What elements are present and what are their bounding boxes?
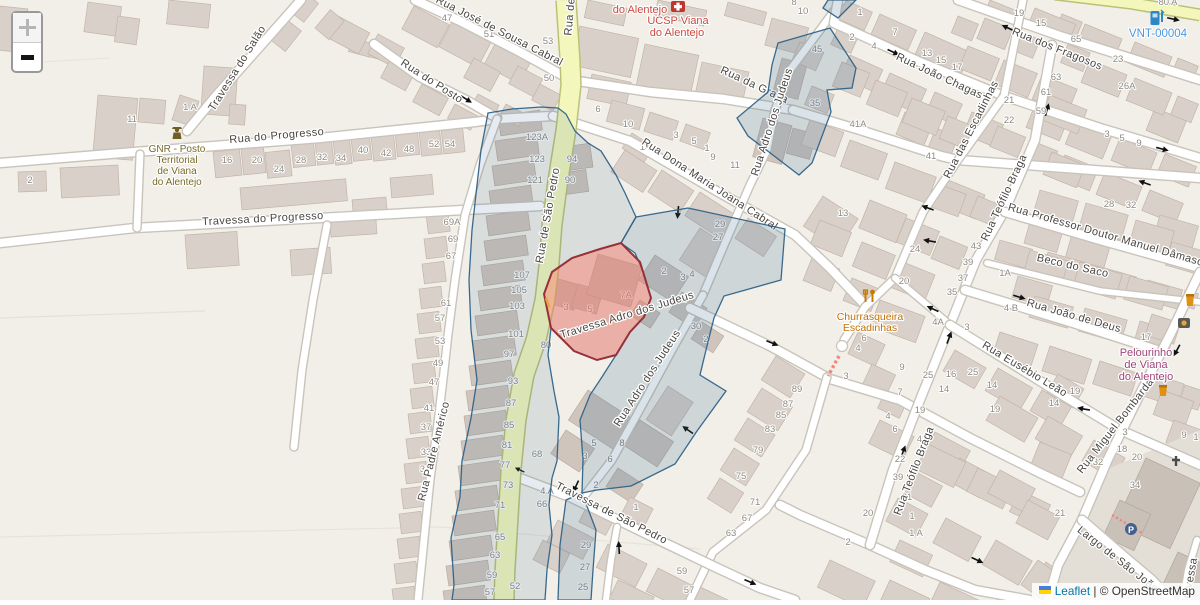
- svg-text:80 A: 80 A: [1158, 0, 1178, 8]
- svg-text:41: 41: [926, 151, 937, 162]
- svg-text:P: P: [1128, 525, 1134, 535]
- svg-text:59: 59: [677, 566, 688, 577]
- svg-text:1: 1: [633, 502, 638, 513]
- svg-text:63: 63: [1051, 72, 1062, 83]
- svg-text:11: 11: [127, 114, 137, 125]
- svg-text:13: 13: [922, 48, 933, 59]
- svg-text:Escadinhas: Escadinhas: [843, 322, 897, 334]
- svg-text:59: 59: [1036, 106, 1047, 117]
- svg-text:15: 15: [1036, 18, 1047, 29]
- svg-text:3: 3: [1122, 427, 1127, 438]
- svg-text:54: 54: [445, 139, 456, 150]
- svg-text:3: 3: [673, 130, 678, 141]
- svg-text:7: 7: [892, 27, 897, 38]
- svg-text:13: 13: [838, 208, 849, 219]
- svg-text:6: 6: [892, 424, 897, 435]
- svg-text:69: 69: [448, 234, 459, 245]
- svg-text:17: 17: [952, 62, 963, 73]
- svg-text:14: 14: [987, 380, 998, 391]
- svg-text:14: 14: [1049, 398, 1060, 409]
- svg-text:42: 42: [381, 148, 392, 159]
- svg-text:6: 6: [861, 333, 866, 344]
- svg-text:4: 4: [885, 411, 890, 422]
- svg-text:63: 63: [726, 528, 737, 539]
- svg-text:5: 5: [691, 136, 696, 147]
- svg-text:37: 37: [958, 273, 969, 284]
- svg-text:14: 14: [939, 384, 950, 395]
- svg-text:71: 71: [750, 497, 761, 508]
- svg-text:9: 9: [1181, 430, 1186, 441]
- svg-text:49: 49: [433, 358, 444, 369]
- svg-text:47: 47: [429, 377, 440, 388]
- svg-text:57: 57: [684, 585, 695, 596]
- svg-text:28: 28: [1104, 199, 1115, 210]
- svg-text:37: 37: [421, 422, 432, 433]
- svg-text:48: 48: [404, 144, 415, 155]
- svg-text:25: 25: [923, 370, 934, 381]
- svg-text:25: 25: [968, 367, 979, 378]
- svg-text:34: 34: [336, 153, 347, 164]
- svg-text:19: 19: [1014, 8, 1025, 19]
- svg-text:35: 35: [947, 287, 958, 298]
- svg-text:20: 20: [1132, 452, 1143, 463]
- svg-text:4: 4: [855, 343, 860, 354]
- svg-text:21: 21: [1004, 95, 1015, 106]
- svg-text:2: 2: [27, 175, 32, 186]
- svg-text:32: 32: [317, 152, 328, 163]
- svg-text:2: 2: [845, 537, 850, 548]
- svg-text:6: 6: [595, 104, 600, 115]
- svg-text:1: 1: [704, 143, 709, 154]
- svg-text:2: 2: [849, 32, 854, 43]
- svg-text:1A: 1A: [999, 268, 1011, 279]
- svg-text:20: 20: [863, 508, 874, 519]
- svg-text:Territorial: Territorial: [156, 155, 197, 166]
- svg-text:GNR - Posto: GNR - Posto: [149, 144, 206, 155]
- svg-text:53: 53: [543, 36, 554, 47]
- svg-text:3: 3: [1104, 129, 1109, 140]
- svg-text:9: 9: [899, 362, 904, 373]
- svg-text:do Alentejo: do Alentejo: [613, 4, 667, 16]
- svg-text:10: 10: [798, 6, 809, 17]
- svg-text:26A: 26A: [1119, 81, 1137, 92]
- svg-text:69A: 69A: [444, 217, 462, 228]
- svg-text:41: 41: [424, 403, 435, 414]
- svg-text:24: 24: [274, 164, 285, 175]
- svg-text:4: 4: [871, 41, 876, 52]
- svg-text:3: 3: [964, 322, 969, 333]
- svg-text:19: 19: [915, 405, 926, 416]
- svg-text:3: 3: [843, 371, 848, 382]
- svg-text:17: 17: [1141, 332, 1152, 343]
- svg-text:19: 19: [1070, 386, 1081, 397]
- svg-text:4A: 4A: [932, 317, 944, 328]
- svg-text:Pelourinho: Pelourinho: [1120, 347, 1173, 359]
- svg-text:47: 47: [442, 13, 453, 24]
- svg-text:40: 40: [358, 145, 369, 156]
- svg-text:de Viana: de Viana: [1124, 359, 1168, 371]
- svg-text:53: 53: [435, 336, 446, 347]
- svg-text:83: 83: [765, 424, 776, 435]
- svg-text:9: 9: [1136, 138, 1141, 149]
- svg-text:41A: 41A: [850, 119, 868, 130]
- svg-text:16: 16: [222, 155, 233, 166]
- svg-text:19: 19: [990, 404, 1001, 415]
- svg-text:34: 34: [1130, 480, 1141, 491]
- svg-text:65: 65: [1071, 34, 1082, 45]
- svg-text:do Alentejo: do Alentejo: [1119, 371, 1173, 383]
- svg-text:57: 57: [435, 313, 446, 324]
- svg-text:39: 39: [893, 472, 904, 483]
- svg-text:61: 61: [441, 298, 452, 309]
- svg-text:VNT-00004: VNT-00004: [1129, 28, 1188, 40]
- svg-text:67: 67: [446, 251, 457, 262]
- svg-text:20: 20: [899, 276, 910, 287]
- svg-text:do Alentejo: do Alentejo: [152, 177, 202, 188]
- svg-text:18: 18: [1117, 444, 1128, 455]
- svg-text:1: 1: [857, 7, 862, 18]
- svg-text:61: 61: [1041, 87, 1052, 98]
- svg-text:32: 32: [1126, 200, 1137, 211]
- svg-text:22: 22: [895, 454, 906, 465]
- svg-text:1 A: 1 A: [183, 102, 197, 113]
- svg-text:1: 1: [1193, 432, 1198, 443]
- svg-text:5: 5: [1119, 133, 1124, 144]
- svg-text:21: 21: [1055, 508, 1066, 519]
- svg-text:10: 10: [623, 119, 634, 130]
- svg-text:28: 28: [296, 155, 307, 166]
- svg-text:75: 75: [736, 471, 747, 482]
- svg-text:1 A: 1 A: [909, 528, 923, 539]
- svg-text:89: 89: [792, 384, 803, 395]
- svg-text:7: 7: [897, 387, 902, 398]
- svg-text:UCSP Viana: UCSP Viana: [647, 15, 709, 27]
- svg-text:1: 1: [909, 511, 914, 522]
- svg-text:de Viana: de Viana: [157, 166, 197, 177]
- svg-text:50: 50: [544, 73, 555, 84]
- svg-text:do Alentejo: do Alentejo: [650, 27, 704, 39]
- svg-text:39: 39: [963, 257, 974, 268]
- svg-text:22: 22: [1004, 115, 1015, 126]
- svg-text:79: 79: [753, 445, 764, 456]
- svg-text:11: 11: [730, 160, 740, 171]
- svg-text:67: 67: [742, 513, 753, 524]
- svg-text:16: 16: [946, 369, 957, 380]
- svg-text:85: 85: [776, 410, 787, 421]
- svg-text:87: 87: [783, 399, 794, 410]
- svg-text:8: 8: [791, 0, 796, 8]
- svg-text:23: 23: [1113, 54, 1124, 65]
- svg-text:52: 52: [429, 139, 440, 150]
- svg-text:24: 24: [910, 244, 921, 255]
- svg-text:20: 20: [252, 155, 263, 166]
- svg-text:43: 43: [971, 241, 982, 252]
- svg-text:9: 9: [710, 152, 715, 163]
- svg-text:4 B: 4 B: [1004, 303, 1018, 314]
- svg-text:15: 15: [936, 55, 947, 66]
